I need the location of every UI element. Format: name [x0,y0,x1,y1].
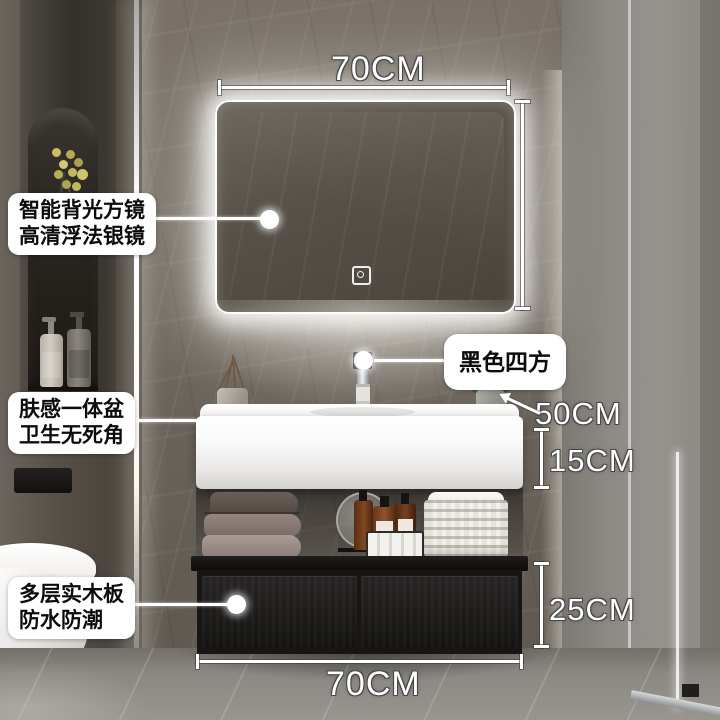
dimension-label-cabinet-height: 25CM [549,592,636,628]
dimension-line-cabinet-width [196,660,523,663]
bottle-pump-cap [380,496,389,507]
bathroom-product-photo: 70CM 50CM 15CM 25CM 70CM 智能背光方镜 高清浮法银镜 黑… [0,0,720,720]
dimension-label-basin-height: 15CM [549,443,636,479]
toilet-flush-plate [14,468,72,493]
integrated-basin-counter [196,416,523,489]
dimension-label-cabinet-width: 70CM [326,665,421,704]
callout-line-faucet [374,359,446,362]
dimension-line-mirror-height [521,100,524,310]
wicker-basket [424,500,508,557]
callout-basin: 肤感一体盆 卫生无死角 [8,392,135,454]
soap-bottle-label [69,350,89,378]
callout-line-basin [124,419,198,422]
cabinet-drawer-right [361,576,518,648]
power-touch-sensor-icon [352,266,371,285]
callout-cabinet: 多层实木板 防水防潮 [8,577,135,639]
callout-cabinet-line2: 防水防潮 [19,608,124,634]
callout-faucet: 黑色四方 [444,334,566,390]
callout-mirror-line1: 智能背光方镜 [19,198,145,224]
bottle-pump-cap [401,493,409,504]
dimension-line-basin-height [540,428,543,489]
callout-mirror-line2: 高清浮法银镜 [19,224,145,250]
shower-glass-edge [676,452,679,708]
callout-dot-mirror [260,210,279,229]
bottle-pump-cap [359,490,367,501]
callout-dot-cabinet [227,595,246,614]
callout-faucet-label: 黑色四方 [459,347,551,377]
callout-mirror: 智能背光方镜 高清浮法银镜 [8,193,156,255]
right-wall-shadow [700,0,720,720]
callout-dot-faucet [354,351,373,370]
callout-line-mirror [143,217,263,220]
dimension-line-cabinet-height [540,562,543,648]
wall-panel-seam [628,0,631,655]
floor-light-reflection [0,660,150,720]
glass-rail-bracket [682,684,699,697]
yellow-flowers [52,148,61,157]
cabinet-drawer-left [202,576,357,648]
callout-cabinet-line1: 多层实木板 [19,582,124,608]
soap-bottle-label [42,352,61,378]
callout-basin-line2: 卫生无死角 [19,423,124,449]
cabinet-top-slab [191,556,528,571]
callout-line-cabinet [122,603,232,606]
dimension-label-counter-depth: 50CM [535,396,622,432]
dimension-label-mirror-width: 70CM [331,50,426,89]
faucet-hang-tag [356,384,370,405]
folded-towel-mauve [204,514,301,537]
callout-basin-line1: 肤感一体盆 [19,397,124,423]
